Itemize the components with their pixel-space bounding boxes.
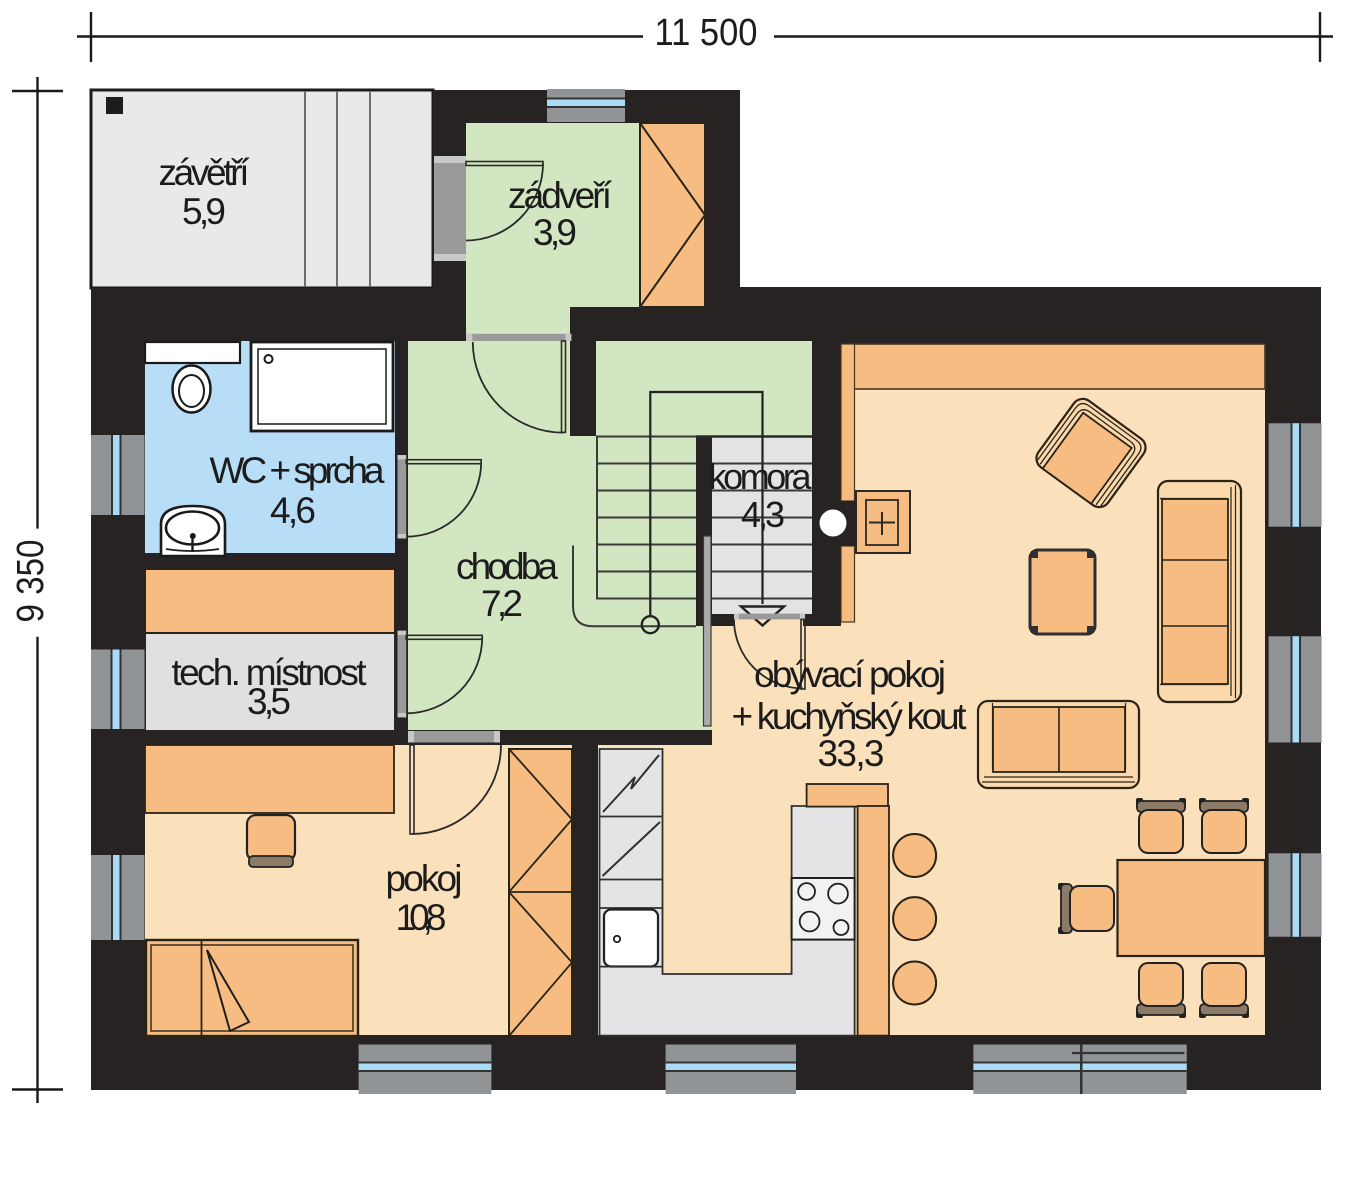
svg-text:chodba: chodba: [456, 546, 558, 587]
svg-text:zádveří: zádveří: [508, 175, 613, 216]
svg-text:7,2: 7,2: [481, 583, 523, 624]
svg-text:+ kuchyňský kout: + kuchyňský kout: [732, 696, 968, 737]
svg-text:3,5: 3,5: [247, 681, 291, 722]
svg-text:pokoj: pokoj: [386, 858, 463, 899]
svg-text:4,3: 4,3: [741, 494, 785, 535]
svg-text:33,3: 33,3: [818, 733, 885, 774]
svg-text:5,9: 5,9: [182, 191, 226, 232]
svg-text:11 500: 11 500: [655, 12, 758, 54]
svg-text:10,8: 10,8: [396, 897, 447, 938]
svg-text:komora: komora: [709, 456, 813, 497]
svg-text:závětří: závětří: [159, 152, 251, 193]
svg-text:WC + sprcha: WC + sprcha: [210, 450, 385, 491]
svg-text:9 350: 9 350: [10, 540, 52, 623]
svg-text:3,9: 3,9: [533, 212, 577, 253]
svg-text:4,6: 4,6: [270, 490, 316, 531]
svg-text:obývací pokoj: obývací pokoj: [754, 654, 946, 695]
